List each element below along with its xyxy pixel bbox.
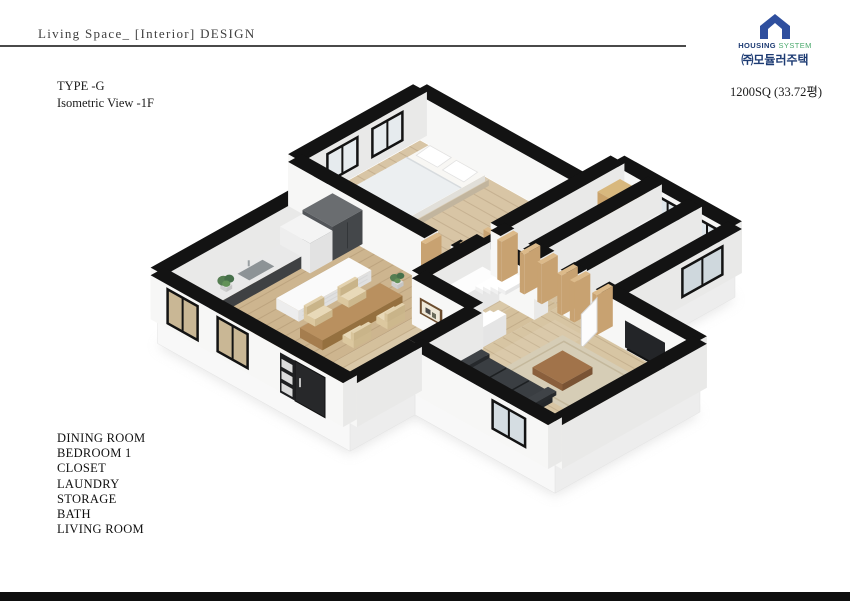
- room-list: DINING ROOM BEDROOM 1 CLOSET LAUNDRY STO…: [57, 431, 145, 537]
- room-list-item: BEDROOM 1: [57, 446, 145, 461]
- room-list-item: LIVING ROOM: [57, 522, 145, 537]
- room-list-item: BATH: [57, 507, 145, 522]
- room-list-item: CLOSET: [57, 461, 145, 476]
- room-list-item: DINING ROOM: [57, 431, 145, 446]
- room-list-item: LAUNDRY: [57, 477, 145, 492]
- room-list-item: STORAGE: [57, 492, 145, 507]
- presentation-page: Living Space_ [Interior] DESIGN HOUSING …: [0, 0, 850, 601]
- footer-bar: [0, 592, 850, 601]
